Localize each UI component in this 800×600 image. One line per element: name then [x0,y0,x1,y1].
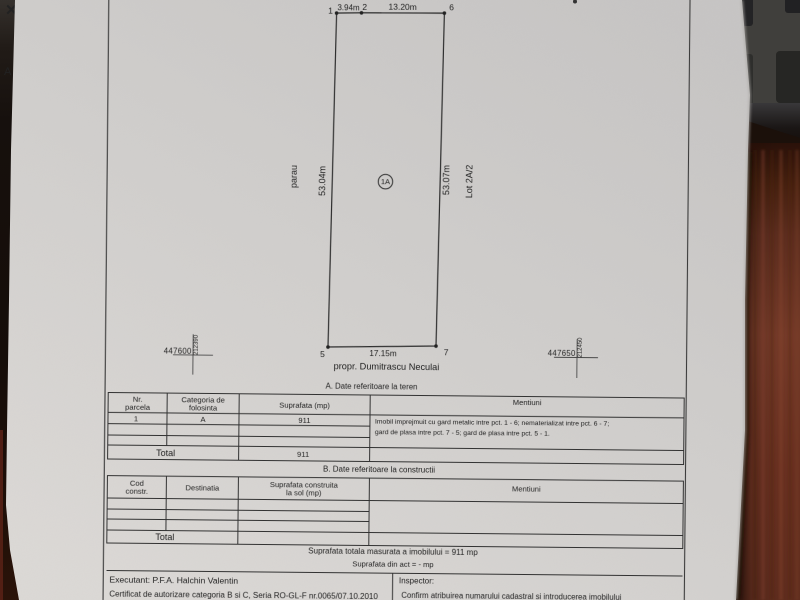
svg-text:A. Date referitoare la teren: A. Date referitoare la teren [326,382,418,392]
svg-text:Total: Total [155,532,174,542]
svg-text:Inspector:: Inspector: [399,576,434,585]
svg-text:2: 2 [362,2,367,12]
svg-text:17.15m: 17.15m [369,349,397,358]
svg-text:Confirm atribuirea numarului c: Confirm atribuirea numarului cadastral s… [401,591,621,600]
svg-text:Suprafata totala masurata a im: Suprafata totala masurata a imobilului =… [308,546,478,557]
svg-text:Mentiuni: Mentiuni [513,398,542,407]
svg-text:B. Date referitoare la constru: B. Date referitoare la constructii [323,464,435,474]
svg-text:parcela: parcela [125,403,151,412]
svg-text:212390: 212390 [193,334,199,355]
svg-text:212450: 212450 [577,337,583,358]
svg-text:folosinta: folosinta [189,403,218,412]
svg-text:7: 7 [444,347,449,357]
svg-text:1: 1 [328,6,333,16]
svg-text:Certificat de autorizare categ: Certificat de autorizare categoria B si … [109,589,378,600]
svg-text:Total: Total [156,448,175,458]
svg-text:la sol (mp): la sol (mp) [286,488,322,497]
svg-text:447650: 447650 [548,349,576,358]
svg-text:1A: 1A [381,177,390,186]
svg-text:Suprafata (mp): Suprafata (mp) [279,400,330,409]
svg-text:6: 6 [449,2,454,12]
svg-text:constr.: constr. [126,487,148,496]
svg-text:Executant: P.F.A. Halchin Vale: Executant: P.F.A. Halchin Valentin [109,575,238,586]
svg-text:53.07m: 53.07m [441,165,451,195]
svg-text:parau: parau [289,165,299,188]
svg-text:Mentiuni: Mentiuni [512,485,541,494]
svg-text:911: 911 [298,416,310,425]
svg-text:Destinatia: Destinatia [185,483,220,492]
svg-text:Suprafata din act = - mp: Suprafata din act = - mp [352,559,433,569]
svg-text:53.04m: 53.04m [317,166,327,196]
svg-text:5: 5 [320,349,325,359]
svg-text:911: 911 [297,450,309,459]
svg-text:A: A [4,66,12,78]
svg-text:1: 1 [134,414,138,423]
svg-text:3.94m: 3.94m [337,3,360,12]
svg-text:Lot 2A/2: Lot 2A/2 [464,165,474,199]
svg-text:447600: 447600 [164,346,192,355]
svg-text:propr. Dumitrascu Neculai: propr. Dumitrascu Neculai [334,361,440,372]
svg-text:13.20m: 13.20m [388,2,416,12]
